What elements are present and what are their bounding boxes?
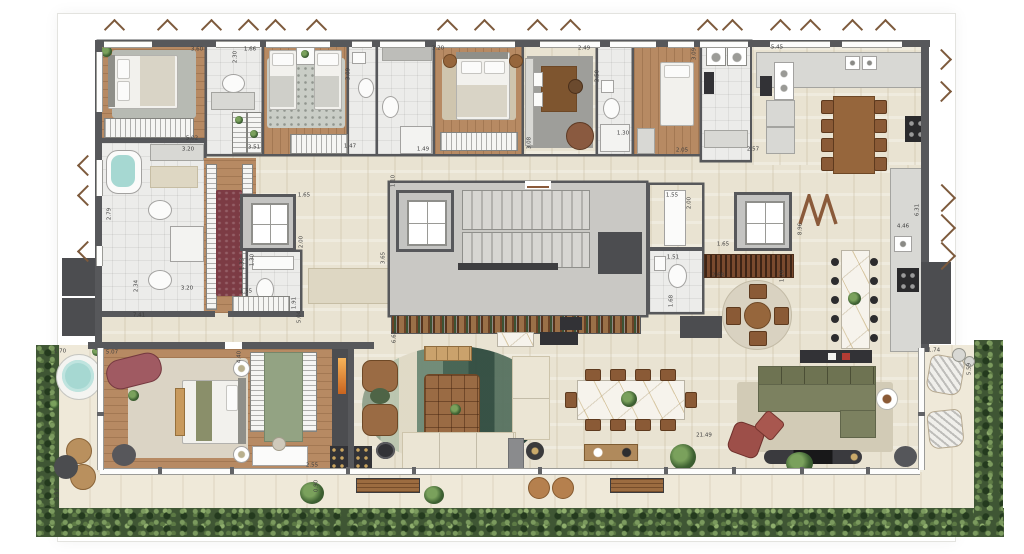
dimension-label: 1.74 <box>928 348 940 354</box>
dimension-label: 3.20 <box>181 286 193 292</box>
dimension-label: 1.33 <box>240 258 246 270</box>
dimension-label: 3.09 <box>346 68 352 80</box>
dimension-label: 1.65 <box>717 242 729 248</box>
dimension-label: 8.96 <box>798 223 804 235</box>
dimension-label: 6.62 <box>392 331 398 343</box>
dimension-label: 2.57 <box>747 147 759 153</box>
dimension-label: 3.20 <box>432 46 444 52</box>
dimension-label: 1.68 <box>669 295 675 307</box>
dimension-label: 0.90 <box>314 480 320 492</box>
dimension-labels-layer: 3.602.301.663.093.202.492.503.095.455.02… <box>0 0 1024 554</box>
dimension-label: 1.70 <box>54 349 66 355</box>
dimension-label: 3.20 <box>182 147 194 153</box>
dimension-label: 5.59 <box>967 363 973 375</box>
dimension-label: 2.50 <box>595 70 601 82</box>
dimension-label: 3.08 <box>527 137 533 149</box>
dimension-label: 1.91 <box>292 297 298 309</box>
dimension-label: 1.65 <box>298 193 310 199</box>
dimension-label: 1.49 <box>417 147 429 153</box>
dimension-label: 2.30 <box>233 51 239 63</box>
dimension-label: 5.45 <box>771 45 783 51</box>
dimension-label: 2.00 <box>687 197 693 209</box>
dimension-label: 1.66 <box>244 47 256 53</box>
dimension-label: 1.10 <box>391 175 397 187</box>
dimension-label: 2.55 <box>306 463 318 469</box>
dimension-label: 2.05 <box>676 148 688 154</box>
dimension-label: 1.30 <box>250 254 256 266</box>
dimension-label: 1.47 <box>344 144 356 150</box>
dimension-label: 3.51 <box>248 145 260 151</box>
floor-plan-canvas: 3.602.301.663.093.202.492.503.095.455.02… <box>0 0 1024 554</box>
dimension-label: 5.07 <box>106 350 118 356</box>
dimension-label: 5.02 <box>186 136 198 142</box>
dimension-label: 6.31 <box>915 204 921 216</box>
dimension-label: 7.41 <box>133 313 145 319</box>
dimension-label: 2.00 <box>299 236 305 248</box>
dimension-label: 5.57 <box>55 488 61 500</box>
dimension-label: 3.09 <box>692 48 698 60</box>
dimension-label: 2.49 <box>578 46 590 52</box>
dimension-label: 5.04 <box>297 311 303 323</box>
dimension-label: 1.55 <box>240 289 252 295</box>
dimension-label: 2.34 <box>134 280 140 292</box>
dimension-label: 2.68 <box>712 273 724 279</box>
dimension-label: 21.49 <box>696 433 712 439</box>
dimension-label: 1.55 <box>666 193 678 199</box>
dimension-label: 4.46 <box>897 224 909 230</box>
dimension-label: 2.79 <box>107 208 113 220</box>
dimension-label: 4.40 <box>237 351 243 363</box>
dimension-label: 1.51 <box>667 255 679 261</box>
dimension-label: 3.65 <box>381 252 387 264</box>
dimension-label: 3.60 <box>191 47 203 53</box>
dimension-label: 1.30 <box>617 131 629 137</box>
dimension-label: 1.28 <box>780 270 786 282</box>
